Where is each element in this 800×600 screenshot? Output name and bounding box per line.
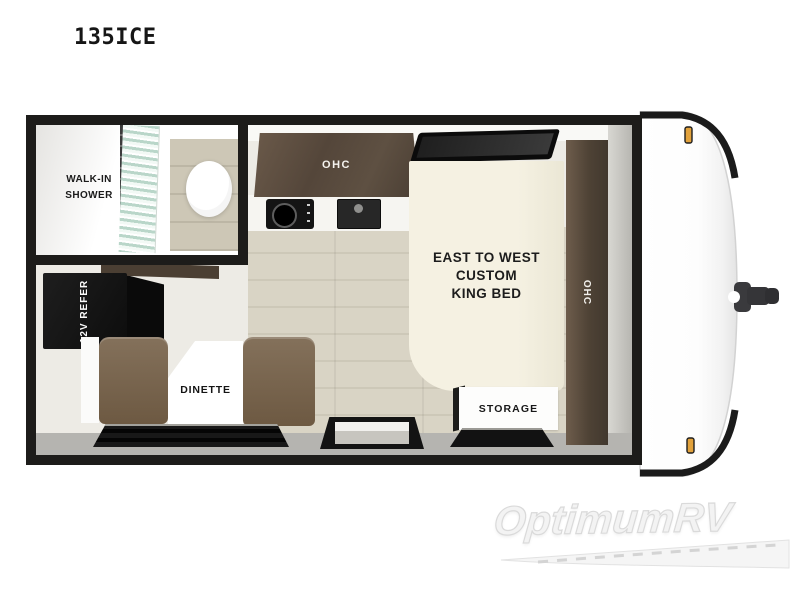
cooktop (266, 199, 314, 229)
floorplan-model-title: 135ICE (74, 25, 156, 50)
hitch-coupler (728, 282, 779, 312)
bathroom: WALK-IN SHOWER (26, 115, 248, 265)
bed-label-line: CUSTOM (456, 267, 517, 285)
burner-icon (272, 203, 297, 228)
bathroom-floor: WALK-IN SHOWER (36, 125, 238, 255)
dinette-window (93, 424, 289, 447)
right-wall-face (608, 125, 632, 455)
cooktop-knobs (307, 204, 310, 224)
trailer-front-cap (634, 106, 786, 482)
bed-label-line: KING BED (451, 285, 521, 303)
dinette-label: DINETTE (180, 384, 231, 396)
bedroom-window (410, 129, 560, 163)
bed-label-line: EAST TO WEST (433, 249, 540, 267)
bedroom-overhead-cabinet: OHC (566, 140, 608, 445)
dinette-end-panel (81, 337, 99, 423)
floorplan: OHC EAST TO WEST CUSTOM KING BED OHC STO… (26, 115, 642, 465)
kitchen-sink (337, 199, 381, 229)
entry-step (320, 417, 424, 449)
sink-drain-icon (354, 204, 363, 213)
storage-floor-mat (450, 428, 554, 447)
toilet (186, 161, 232, 217)
bedroom-ohc-label: OHC (581, 280, 592, 305)
marker-light-top-icon (685, 127, 692, 143)
storage-label: STORAGE (479, 403, 538, 415)
king-bed: EAST TO WEST CUSTOM KING BED (409, 161, 564, 391)
dinette-bench-right (243, 337, 315, 426)
watermark-road-icon (498, 537, 793, 571)
refrigerator-label: 12V REFER (80, 279, 91, 342)
marker-light-bottom-icon (687, 438, 694, 453)
dinette-bench-left (99, 337, 168, 424)
kitchen-overhead-cabinet: OHC (254, 133, 419, 197)
cap-body (640, 112, 737, 476)
bedroom-window-glass (416, 133, 553, 157)
kitchen-ohc-label: OHC (322, 159, 351, 171)
shower-label-line: SHOWER (50, 188, 128, 204)
storage-box: STORAGE (459, 387, 558, 430)
shower-label-line: WALK-IN (50, 172, 128, 188)
entry-step-tread (335, 422, 409, 431)
walk-in-shower-label: WALK-IN SHOWER (50, 172, 128, 204)
